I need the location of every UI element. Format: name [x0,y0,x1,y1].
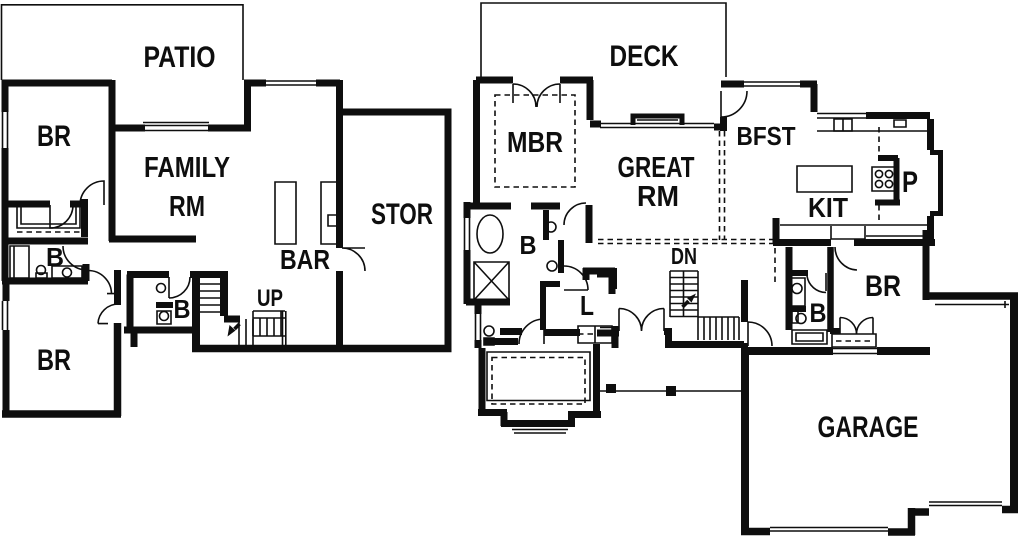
svg-text:RM: RM [637,181,679,213]
svg-text:BFST: BFST [737,121,796,151]
svg-text:STOR: STOR [371,198,433,231]
svg-text:BR: BR [37,344,71,377]
svg-text:GREAT: GREAT [618,152,695,184]
svg-text:MBR: MBR [507,127,563,159]
svg-text:L: L [580,290,594,321]
svg-text:DECK: DECK [610,40,679,73]
svg-text:FAMILY: FAMILY [144,152,230,184]
svg-text:B: B [174,294,191,324]
svg-text:BAR: BAR [280,244,330,275]
svg-text:B: B [520,230,537,260]
svg-text:B: B [46,242,64,272]
svg-text:P: P [902,166,918,199]
svg-text:RM: RM [169,191,205,223]
svg-text:UP: UP [257,285,283,312]
svg-text:PATIO: PATIO [144,41,216,74]
svg-text:B: B [810,298,827,328]
svg-text:BR: BR [865,270,901,303]
svg-text:BR: BR [37,120,71,153]
svg-text:GARAGE: GARAGE [818,411,919,444]
svg-text:DN: DN [671,243,697,269]
svg-text:KIT: KIT [808,192,848,223]
